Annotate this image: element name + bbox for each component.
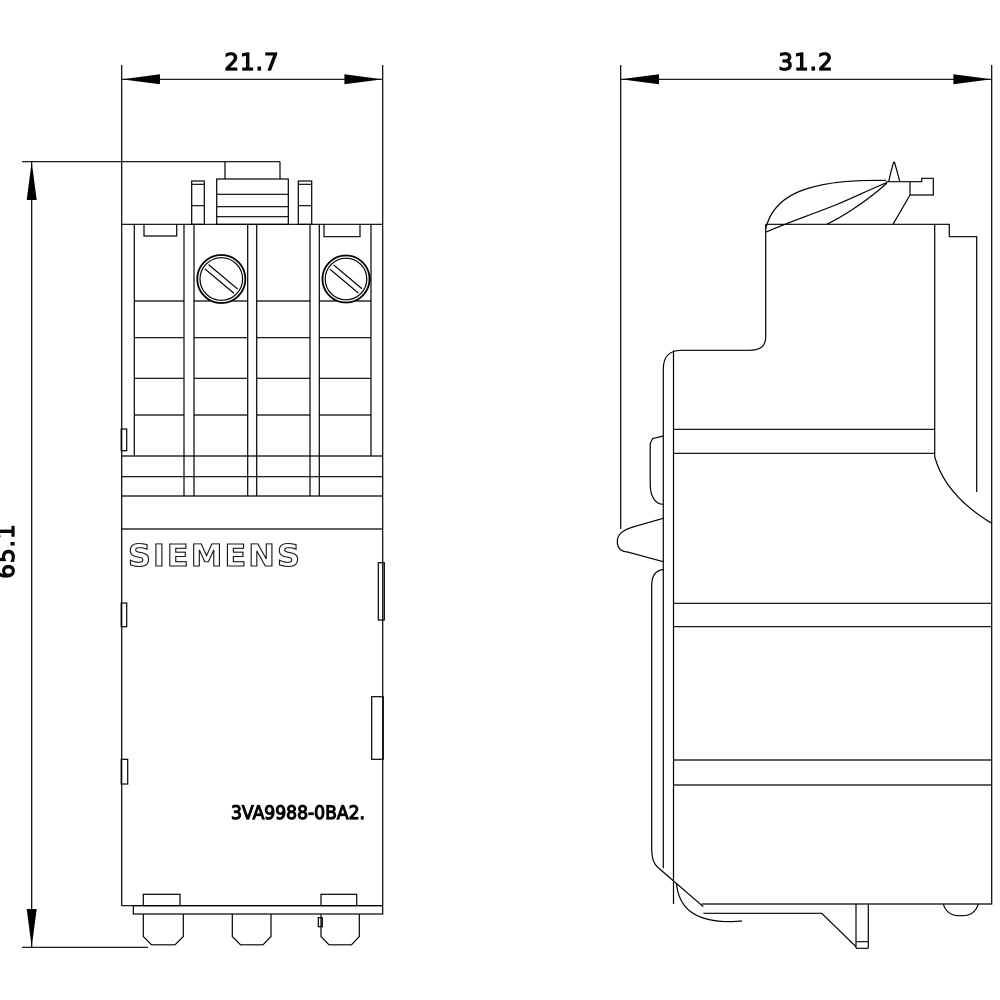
dimension-side-depth: 31.2 bbox=[621, 50, 992, 529]
front-width-arrow-left bbox=[122, 74, 160, 84]
bottom-boss-right bbox=[321, 894, 357, 905]
front-width-extension-lines bbox=[122, 65, 383, 224]
screw-right-icon bbox=[323, 256, 370, 303]
side-bottom-plate bbox=[703, 913, 856, 946]
side-depth-value: 31.2 bbox=[778, 50, 833, 76]
side-bottom-pin bbox=[856, 904, 868, 948]
screw-left-outer-ring bbox=[197, 255, 245, 303]
grid-row-lines bbox=[134, 301, 371, 415]
lever-clip-step bbox=[886, 178, 933, 224]
side-release-lever bbox=[766, 162, 934, 232]
side-view bbox=[617, 162, 991, 948]
side-depth-arrow-right bbox=[953, 74, 991, 84]
right-edge-latch-2 bbox=[372, 697, 384, 760]
right-edge-latch-1 bbox=[378, 563, 384, 620]
top-recess-right bbox=[324, 224, 360, 236]
cap-left-tab-ribs bbox=[192, 184, 205, 205]
front-width-value: 21.7 bbox=[224, 50, 279, 76]
plug-3 bbox=[321, 914, 359, 945]
channel-1 bbox=[184, 224, 194, 496]
side-grooves bbox=[674, 429, 992, 785]
bottom-boss-left bbox=[143, 894, 180, 905]
front-view: SIEMENS 3VA9988-0BA2. bbox=[121, 162, 384, 945]
side-bottom-details bbox=[703, 904, 978, 948]
clip-upper-finger bbox=[650, 436, 663, 504]
side-depth-arrow-left bbox=[621, 74, 659, 84]
part-number-label: 3VA9988-0BA2. bbox=[231, 802, 365, 824]
lever-outer-curve bbox=[766, 180, 886, 229]
front-top-terminal-cover bbox=[192, 162, 312, 225]
height-arrow-bottom bbox=[27, 909, 37, 947]
clip-release-lug bbox=[617, 518, 663, 561]
dimension-front-width: 21.7 bbox=[122, 50, 383, 224]
side-din-clip bbox=[617, 436, 742, 922]
cap-left-tab bbox=[192, 181, 205, 224]
plug-1 bbox=[143, 914, 183, 945]
screw-right-outer-ring bbox=[323, 256, 370, 303]
grid-full-width-lines bbox=[122, 456, 383, 529]
screw-left-icon bbox=[197, 255, 245, 303]
siemens-logo: SIEMENS bbox=[128, 539, 302, 574]
dimension-drawing: SIEMENS 3VA9988-0BA2. bbox=[0, 0, 1000, 1000]
front-width-arrow-right bbox=[344, 74, 382, 84]
side-outline bbox=[663, 224, 991, 904]
technical-drawing-canvas: SIEMENS 3VA9988-0BA2. bbox=[0, 0, 1000, 1000]
cap-lower-block-ribs bbox=[217, 194, 289, 216]
channel-3 bbox=[310, 224, 319, 496]
cap-right-tab-ribs bbox=[298, 184, 311, 205]
channel-2 bbox=[248, 224, 257, 496]
lever-inner-curve bbox=[827, 183, 887, 224]
cap-lower-block bbox=[217, 179, 289, 224]
front-bottom-plugs bbox=[133, 894, 382, 945]
top-recess-left bbox=[144, 224, 177, 236]
cap-upper-block bbox=[225, 162, 280, 179]
side-right-foot bbox=[943, 904, 978, 916]
bottom-plate bbox=[133, 906, 382, 914]
cap-right-tab bbox=[298, 181, 311, 224]
height-arrow-top bbox=[27, 162, 37, 200]
height-value: 65.1 bbox=[0, 523, 20, 578]
dimension-height: 65.1 bbox=[0, 162, 148, 948]
plug-2 bbox=[232, 914, 271, 945]
clip-bottom-chamfer bbox=[658, 868, 703, 907]
clip-lower-leg bbox=[652, 570, 664, 868]
front-side-latches bbox=[121, 429, 384, 784]
lever-pointer-tip bbox=[889, 162, 900, 181]
clip-foot-arc bbox=[677, 884, 743, 922]
plug-3-latch bbox=[318, 918, 322, 927]
